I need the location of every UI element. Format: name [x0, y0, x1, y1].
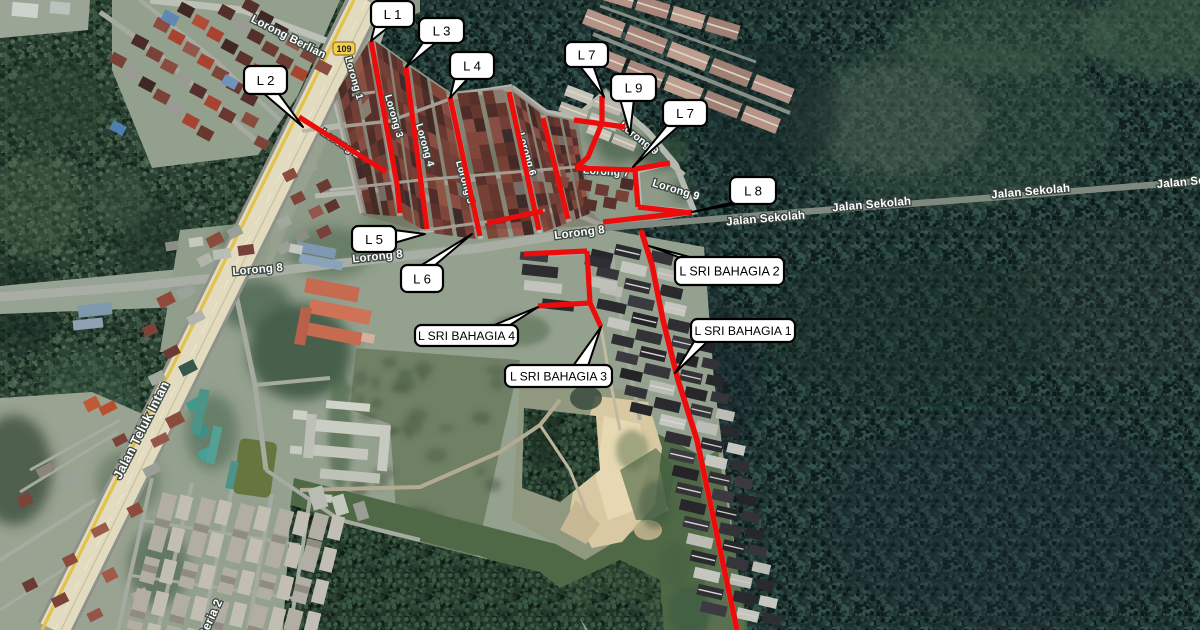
svg-text:L SRI BAHAGIA 3: L SRI BAHAGIA 3	[510, 369, 607, 383]
svg-text:L 7: L 7	[676, 106, 694, 121]
svg-text:L 4: L 4	[463, 58, 481, 73]
svg-text:L 5: L 5	[365, 232, 383, 247]
svg-text:L 3: L 3	[433, 23, 451, 38]
svg-text:L SRI BAHAGIA 2: L SRI BAHAGIA 2	[679, 265, 779, 279]
svg-text:L 9: L 9	[625, 80, 643, 95]
svg-text:L 6: L 6	[413, 271, 431, 286]
svg-text:L 7: L 7	[578, 47, 596, 62]
svg-text:L SRI BAHAGIA 4: L SRI BAHAGIA 4	[418, 329, 515, 343]
svg-text:109: 109	[336, 44, 351, 54]
svg-text:L SRI BAHAGIA 1: L SRI BAHAGIA 1	[694, 324, 791, 338]
svg-text:L 8: L 8	[744, 183, 762, 198]
svg-text:L 1: L 1	[384, 7, 402, 22]
svg-text:L 2: L 2	[257, 73, 275, 88]
